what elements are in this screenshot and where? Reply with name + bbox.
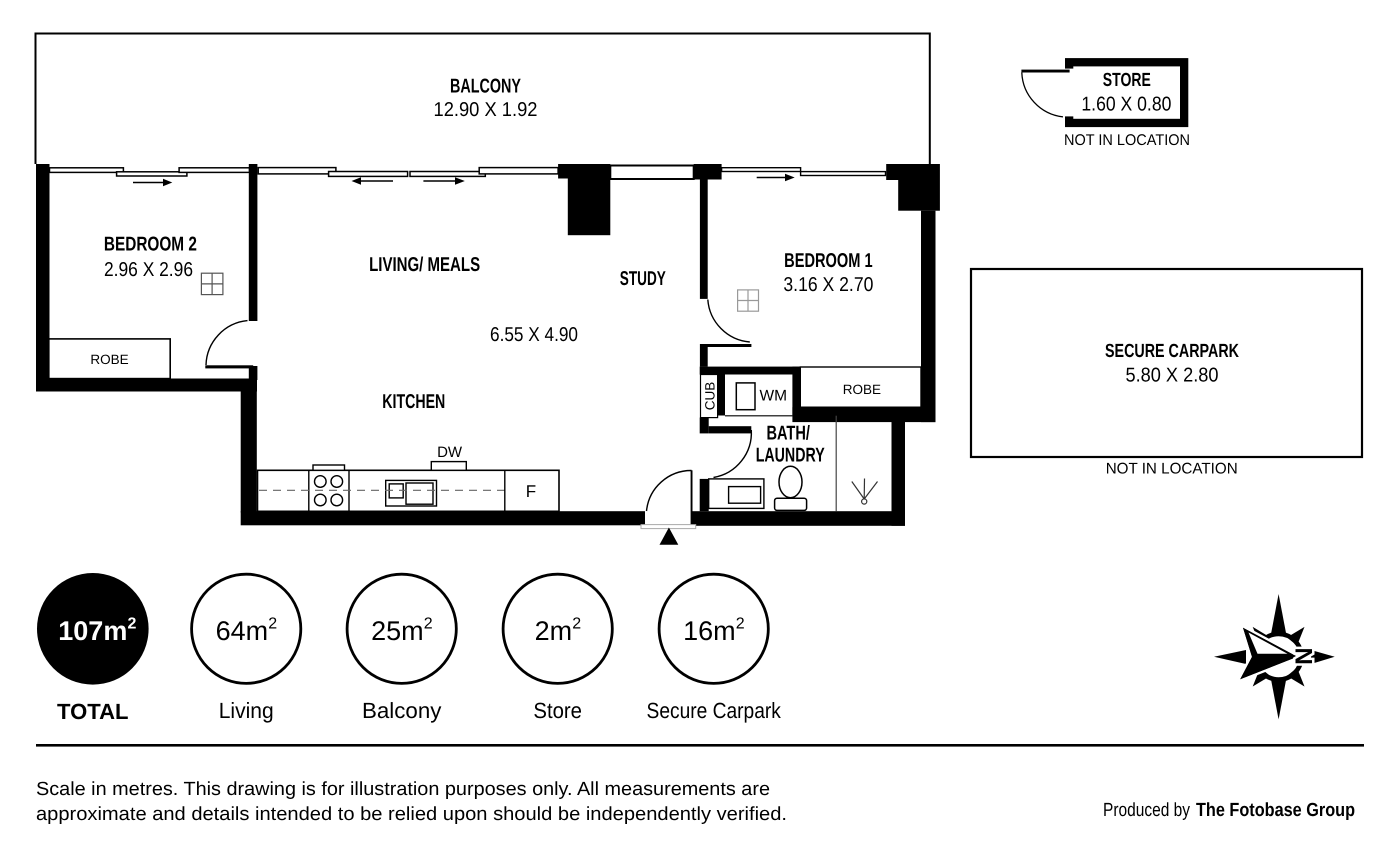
svg-text:The Fotobase Group: The Fotobase Group <box>1196 800 1355 821</box>
svg-text:BEDROOM 2: BEDROOM 2 <box>104 234 197 256</box>
svg-text:BEDROOM 1: BEDROOM 1 <box>784 250 873 272</box>
svg-text:SECURE CARPARK: SECURE CARPARK <box>1105 341 1239 362</box>
svg-text:3.16 X 2.70: 3.16 X 2.70 <box>783 274 873 296</box>
svg-text:KITCHEN: KITCHEN <box>382 391 445 413</box>
svg-text:1.60 X 0.80: 1.60 X 0.80 <box>1081 94 1171 116</box>
svg-text:WM: WM <box>760 387 788 404</box>
svg-text:2m: 2m <box>535 616 573 646</box>
svg-text:CUB: CUB <box>703 382 718 411</box>
svg-text:6.55 X 4.90: 6.55 X 4.90 <box>490 324 578 346</box>
svg-text:DW: DW <box>437 444 463 461</box>
svg-text:107m: 107m <box>58 616 127 646</box>
svg-text:ROBE: ROBE <box>843 382 881 397</box>
svg-text:16m: 16m <box>683 616 736 646</box>
svg-text:ROBE: ROBE <box>90 352 128 367</box>
svg-text:approximate and details intend: approximate and details intended to be r… <box>36 804 787 825</box>
svg-text:25m: 25m <box>371 616 424 646</box>
svg-text:5.80 X 2.80: 5.80 X 2.80 <box>1126 365 1219 387</box>
svg-text:Living: Living <box>219 698 274 723</box>
svg-text:TOTAL: TOTAL <box>57 699 129 724</box>
svg-text:NOT IN LOCATION: NOT IN LOCATION <box>1064 132 1190 149</box>
svg-text:LAUNDRY: LAUNDRY <box>756 445 825 467</box>
svg-text:N: N <box>1290 648 1317 665</box>
svg-text:BATH/: BATH/ <box>766 422 810 444</box>
svg-text:LIVING/ MEALS: LIVING/ MEALS <box>369 254 480 276</box>
svg-text:Balcony: Balcony <box>362 698 441 723</box>
svg-text:F: F <box>526 482 536 501</box>
svg-text:2.96 X 2.96: 2.96 X 2.96 <box>104 259 193 281</box>
svg-text:2: 2 <box>736 616 745 633</box>
svg-text:2: 2 <box>424 616 433 633</box>
svg-text:Scale in metres. This drawing: Scale in metres. This drawing is for ill… <box>36 779 770 800</box>
svg-text:2: 2 <box>572 616 581 633</box>
svg-text:STUDY: STUDY <box>620 268 666 290</box>
svg-text:12.90 X 1.92: 12.90 X 1.92 <box>434 99 538 121</box>
svg-text:Produced by: Produced by <box>1103 800 1190 821</box>
svg-text:BALCONY: BALCONY <box>450 76 521 98</box>
svg-text:STORE: STORE <box>1103 70 1151 91</box>
svg-text:Secure Carpark: Secure Carpark <box>647 698 782 723</box>
svg-text:2: 2 <box>268 616 277 633</box>
svg-text:64m: 64m <box>216 616 269 646</box>
svg-text:2: 2 <box>128 616 137 633</box>
svg-text:NOT IN LOCATION: NOT IN LOCATION <box>1106 461 1238 478</box>
svg-text:Store: Store <box>533 698 582 723</box>
